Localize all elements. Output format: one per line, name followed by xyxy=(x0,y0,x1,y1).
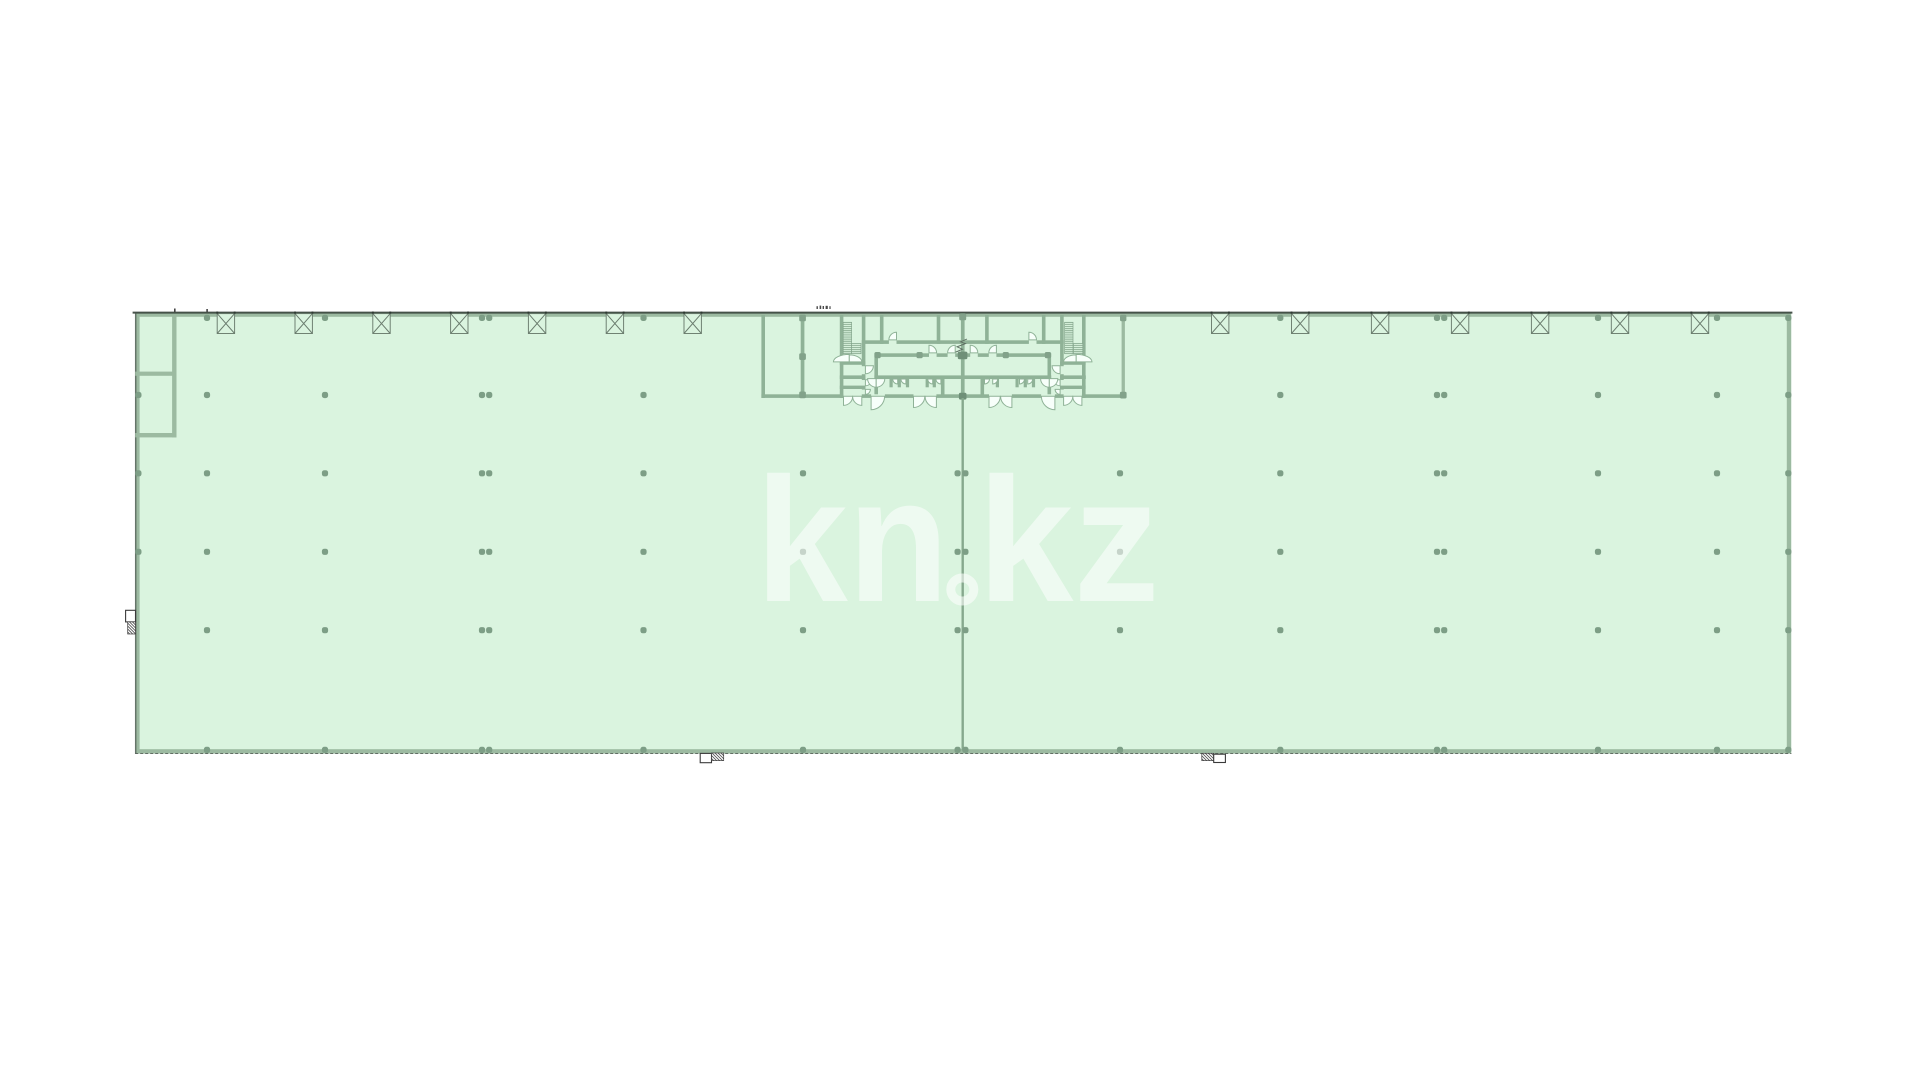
svg-text:kz: kz xyxy=(978,442,1160,640)
svg-text:kn: kn xyxy=(756,442,949,639)
